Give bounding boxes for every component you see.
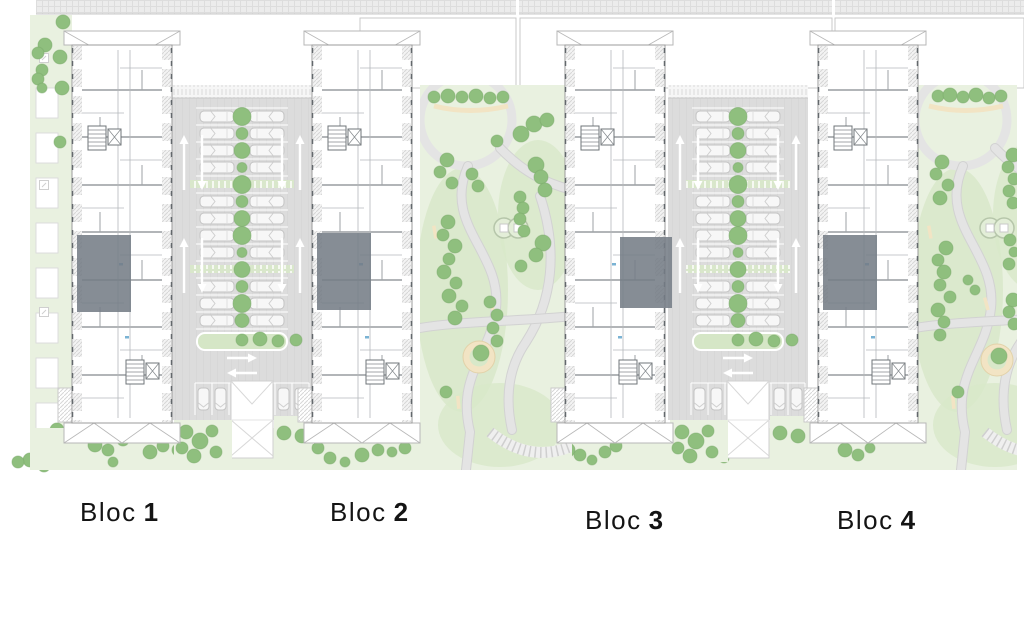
tree xyxy=(12,456,24,468)
parked-car xyxy=(198,388,209,410)
tree xyxy=(749,332,763,346)
tree xyxy=(491,335,503,347)
selected-unit-overlay[interactable] xyxy=(823,235,877,310)
tree xyxy=(437,229,449,241)
parked-car xyxy=(250,111,284,122)
tree xyxy=(472,180,484,192)
tree xyxy=(441,215,455,229)
tree xyxy=(733,248,743,258)
selected-unit-overlay[interactable] xyxy=(77,235,131,312)
tree xyxy=(599,446,611,458)
tree xyxy=(469,89,483,103)
tree xyxy=(233,227,251,245)
parked-car xyxy=(711,388,722,410)
tree xyxy=(176,442,188,454)
parked-car xyxy=(696,111,730,122)
parked-car xyxy=(696,230,730,241)
tree xyxy=(518,225,530,237)
parked-car xyxy=(746,315,780,326)
tree xyxy=(773,426,787,440)
tree xyxy=(456,91,468,103)
parked-car xyxy=(215,388,226,410)
balcony xyxy=(36,358,58,388)
tree xyxy=(233,108,251,126)
balcony xyxy=(36,313,58,343)
tree xyxy=(1002,161,1014,173)
parked-car xyxy=(746,230,780,241)
tree xyxy=(1003,306,1015,318)
bloc-label-number: 3 xyxy=(649,505,663,535)
street-band xyxy=(519,0,832,14)
tree xyxy=(441,89,455,103)
parked-car xyxy=(746,128,780,139)
parked-car xyxy=(746,162,780,173)
tree xyxy=(277,426,291,440)
tree xyxy=(491,309,503,321)
tree xyxy=(102,444,114,456)
tree xyxy=(372,444,384,456)
tree xyxy=(732,196,744,208)
tree xyxy=(942,179,954,191)
garage-ramp xyxy=(727,381,769,458)
tree xyxy=(732,281,744,293)
parked-car xyxy=(746,213,780,224)
tree xyxy=(995,90,1007,102)
tree xyxy=(934,279,946,291)
parked-car xyxy=(250,230,284,241)
tree xyxy=(210,446,222,458)
tree xyxy=(706,446,718,458)
street-band xyxy=(835,0,1024,14)
tree xyxy=(683,449,697,463)
tree xyxy=(969,88,983,102)
tree xyxy=(428,91,440,103)
tree xyxy=(448,311,462,325)
tree xyxy=(702,425,714,437)
parked-car xyxy=(746,196,780,207)
tree xyxy=(733,163,743,173)
tree xyxy=(450,277,462,289)
tree xyxy=(272,335,284,347)
tree xyxy=(484,92,496,104)
parked-car xyxy=(250,315,284,326)
tree xyxy=(526,116,542,132)
tree xyxy=(538,183,552,197)
tree xyxy=(838,443,852,457)
parked-car xyxy=(746,145,780,156)
site-plan: Bloc1 Bloc2 Bloc3 Bloc4 xyxy=(0,0,1024,621)
parked-car xyxy=(696,315,730,326)
parking-strip xyxy=(172,85,314,463)
tree xyxy=(932,90,944,102)
parked-car xyxy=(696,213,730,224)
tree xyxy=(935,155,949,169)
tree xyxy=(53,50,67,64)
selected-unit-overlay[interactable] xyxy=(317,233,371,310)
tree xyxy=(253,332,267,346)
parked-car xyxy=(250,196,284,207)
tree xyxy=(108,457,118,467)
balcony xyxy=(36,223,58,253)
tree xyxy=(534,170,548,184)
tree xyxy=(1008,318,1020,330)
tree xyxy=(234,262,250,278)
parked-car xyxy=(200,196,234,207)
bloc-label-number: 2 xyxy=(394,497,408,527)
tree xyxy=(930,168,942,180)
parked-car xyxy=(696,128,730,139)
tree xyxy=(732,128,744,140)
parked-car xyxy=(250,145,284,156)
tree xyxy=(234,211,250,227)
tree xyxy=(529,248,543,262)
tree xyxy=(236,128,248,140)
parked-car xyxy=(200,128,234,139)
parking-strip xyxy=(668,85,810,463)
tree xyxy=(944,291,956,303)
bloc-1-label[interactable]: Bloc1 xyxy=(80,497,158,528)
tree xyxy=(437,265,451,279)
bloc-2-plan[interactable] xyxy=(298,31,420,443)
tree xyxy=(440,153,454,167)
tree xyxy=(54,136,66,148)
street-band xyxy=(36,0,516,14)
parked-car xyxy=(200,145,234,156)
tree xyxy=(235,314,249,328)
parked-car xyxy=(696,145,730,156)
parked-car xyxy=(696,162,730,173)
parked-car xyxy=(250,162,284,173)
parked-car xyxy=(278,388,289,410)
parked-car xyxy=(200,162,234,173)
parked-car xyxy=(746,298,780,309)
tree xyxy=(466,168,478,180)
parked-car xyxy=(746,111,780,122)
tree xyxy=(934,329,946,341)
tree xyxy=(324,452,336,464)
tree xyxy=(939,241,953,255)
tree xyxy=(192,433,208,449)
tree xyxy=(290,334,302,346)
tree xyxy=(1004,234,1016,246)
parked-car xyxy=(250,213,284,224)
tree xyxy=(473,345,489,361)
tree xyxy=(1009,247,1019,257)
parked-car xyxy=(200,247,234,258)
tree xyxy=(938,316,950,328)
tree xyxy=(233,295,251,313)
tree xyxy=(355,448,369,462)
tree xyxy=(143,445,157,459)
parked-car xyxy=(696,247,730,258)
tree xyxy=(32,47,44,59)
parked-car xyxy=(200,213,234,224)
tree xyxy=(991,348,1007,364)
tree xyxy=(1006,148,1020,162)
tree xyxy=(487,322,499,334)
tree xyxy=(515,260,527,272)
tree xyxy=(729,295,747,313)
tree xyxy=(236,281,248,293)
bloc-label-number: 1 xyxy=(144,497,158,527)
tree xyxy=(933,191,947,205)
tree xyxy=(446,177,458,189)
tree xyxy=(1006,293,1020,307)
tree xyxy=(732,334,744,346)
tree xyxy=(729,108,747,126)
parked-car xyxy=(250,298,284,309)
tree xyxy=(730,143,746,159)
park xyxy=(911,74,1024,470)
tree xyxy=(37,83,47,93)
tree xyxy=(963,275,973,285)
parked-car xyxy=(696,196,730,207)
tree xyxy=(517,202,529,214)
tree xyxy=(970,285,980,295)
tree xyxy=(434,166,446,178)
bloc-label-word: Bloc xyxy=(585,505,642,535)
tree xyxy=(791,429,805,443)
bloc-label-number: 4 xyxy=(901,505,915,535)
parked-car xyxy=(250,128,284,139)
parked-car xyxy=(791,388,802,410)
tree xyxy=(56,15,70,29)
bloc-1-plan[interactable] xyxy=(58,31,180,443)
bloc-label-word: Bloc xyxy=(837,505,894,535)
bloc-3-label[interactable]: Bloc3 xyxy=(585,505,663,536)
bloc-3-plan[interactable] xyxy=(551,31,673,443)
tree xyxy=(513,126,529,142)
tree xyxy=(484,296,496,308)
tree xyxy=(574,449,586,461)
tree xyxy=(852,449,864,461)
balcony xyxy=(36,268,58,298)
tree xyxy=(1007,197,1019,209)
tree xyxy=(340,457,350,467)
tree xyxy=(675,425,689,439)
parked-car xyxy=(250,247,284,258)
tree xyxy=(540,113,554,127)
tree xyxy=(983,92,995,104)
bloc-label-word: Bloc xyxy=(330,497,387,527)
tree xyxy=(187,449,201,463)
parked-car xyxy=(694,388,705,410)
parked-car xyxy=(200,111,234,122)
tree xyxy=(952,386,964,398)
tree xyxy=(943,88,957,102)
tree xyxy=(456,300,468,312)
tree xyxy=(1003,258,1015,270)
bloc-4-label[interactable]: Bloc4 xyxy=(837,505,915,536)
bloc-label-word: Bloc xyxy=(80,497,137,527)
tree xyxy=(399,442,411,454)
selected-unit-overlay[interactable] xyxy=(620,237,672,308)
tree xyxy=(440,386,452,398)
tree xyxy=(729,227,747,245)
tree xyxy=(688,433,704,449)
tree xyxy=(730,211,746,227)
tree xyxy=(1003,185,1015,197)
tree xyxy=(443,253,455,265)
tree xyxy=(491,135,503,147)
parked-car xyxy=(746,247,780,258)
parked-car xyxy=(696,298,730,309)
tree xyxy=(768,335,780,347)
tree xyxy=(234,143,250,159)
tree xyxy=(55,81,69,95)
tree xyxy=(1008,173,1020,185)
tree xyxy=(931,303,945,317)
tree xyxy=(957,91,969,103)
tree xyxy=(865,443,875,453)
garage-ramp xyxy=(231,381,273,458)
tree xyxy=(237,248,247,258)
tree xyxy=(786,334,798,346)
tree xyxy=(236,334,248,346)
tree xyxy=(730,262,746,278)
tree xyxy=(731,314,745,328)
tree xyxy=(442,289,456,303)
tree xyxy=(729,176,747,194)
tree xyxy=(514,191,526,203)
tree xyxy=(587,455,597,465)
tree xyxy=(387,447,397,457)
tree xyxy=(233,176,251,194)
tree xyxy=(672,442,684,454)
parked-car xyxy=(200,298,234,309)
tree xyxy=(514,213,526,225)
bloc-2-label[interactable]: Bloc2 xyxy=(330,497,408,528)
balcony xyxy=(36,133,58,163)
tree xyxy=(497,91,509,103)
tree xyxy=(932,254,944,266)
bloc-4-plan[interactable] xyxy=(804,31,926,443)
parked-car xyxy=(200,230,234,241)
tree xyxy=(206,425,218,437)
tree xyxy=(236,196,248,208)
tree xyxy=(179,425,193,439)
tree xyxy=(448,239,462,253)
tree xyxy=(937,265,951,279)
parked-car xyxy=(200,315,234,326)
parked-car xyxy=(774,388,785,410)
tree xyxy=(237,163,247,173)
